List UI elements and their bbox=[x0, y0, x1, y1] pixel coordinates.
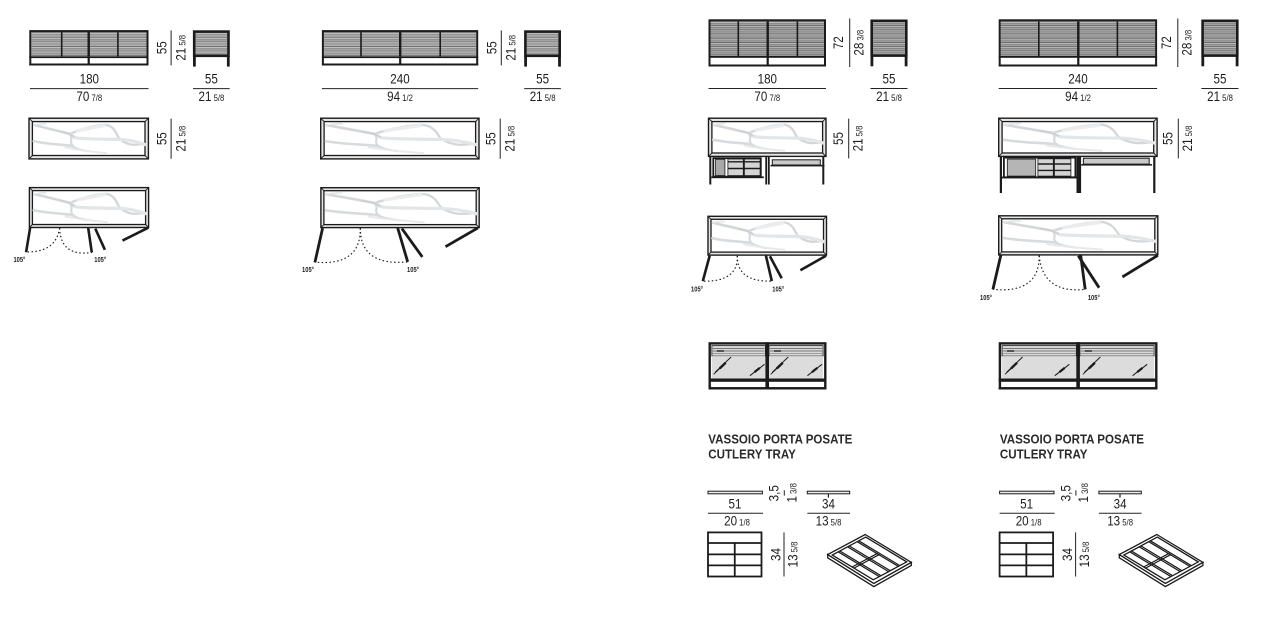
svg-text:VASSOIO PORTA POSATE: VASSOIO PORTA POSATE bbox=[1000, 432, 1144, 447]
svg-text:55: 55 bbox=[483, 41, 499, 54]
svg-text:55: 55 bbox=[153, 132, 169, 145]
svg-text:55: 55 bbox=[883, 71, 896, 87]
svg-text:105°: 105° bbox=[772, 285, 784, 294]
svg-text:51: 51 bbox=[729, 495, 742, 511]
svg-text:34: 34 bbox=[767, 548, 783, 561]
svg-text:55: 55 bbox=[1159, 132, 1175, 145]
svg-text:CUTLERY TRAY: CUTLERY TRAY bbox=[708, 447, 796, 462]
svg-text:55: 55 bbox=[153, 41, 169, 54]
svg-text:CUTLERY TRAY: CUTLERY TRAY bbox=[1000, 447, 1088, 462]
svg-text:180: 180 bbox=[758, 71, 777, 87]
svg-text:105°: 105° bbox=[302, 265, 314, 274]
svg-text:105°: 105° bbox=[691, 285, 703, 294]
svg-text:55: 55 bbox=[205, 71, 218, 87]
svg-text:3,5: 3,5 bbox=[766, 485, 782, 501]
svg-text:55: 55 bbox=[1214, 71, 1227, 87]
svg-text:240: 240 bbox=[390, 71, 409, 87]
svg-text:VASSOIO PORTA POSATE: VASSOIO PORTA POSATE bbox=[708, 432, 852, 447]
svg-text:55: 55 bbox=[536, 71, 549, 87]
svg-text:55: 55 bbox=[830, 132, 846, 145]
svg-text:51: 51 bbox=[1020, 495, 1033, 511]
svg-text:105°: 105° bbox=[407, 265, 419, 274]
svg-text:3,5: 3,5 bbox=[1057, 485, 1073, 501]
svg-text:34: 34 bbox=[1059, 548, 1075, 561]
svg-text:180: 180 bbox=[80, 71, 99, 87]
svg-text:72: 72 bbox=[1158, 36, 1174, 49]
svg-text:72: 72 bbox=[830, 36, 846, 49]
svg-text:105°: 105° bbox=[13, 255, 25, 264]
svg-text:34: 34 bbox=[822, 495, 835, 511]
svg-text:240: 240 bbox=[1068, 71, 1087, 87]
svg-text:105°: 105° bbox=[980, 294, 992, 303]
svg-text:105°: 105° bbox=[94, 255, 106, 264]
svg-text:34: 34 bbox=[1114, 495, 1127, 511]
svg-text:55: 55 bbox=[482, 132, 498, 145]
svg-text:105°: 105° bbox=[1088, 294, 1100, 303]
